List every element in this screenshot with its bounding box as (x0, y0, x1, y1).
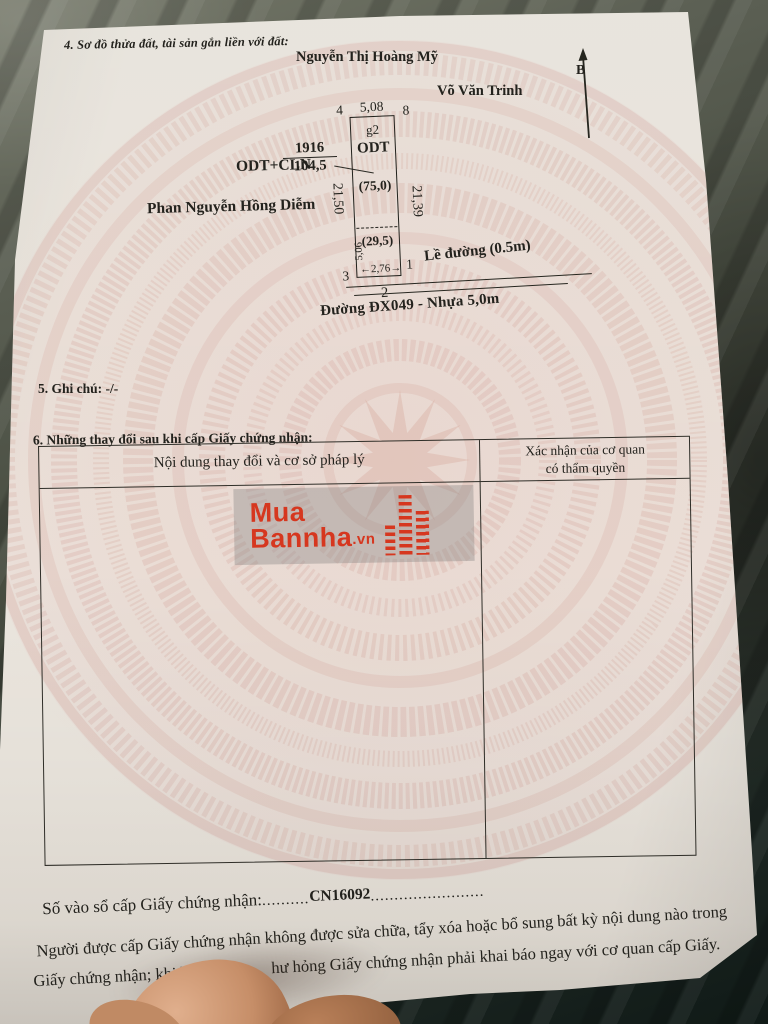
edge-length-top: 5,08 (346, 98, 398, 116)
arrow-left-icon: ← (360, 263, 372, 275)
adjacent-parcel-number: 1916 (282, 140, 337, 159)
sidewalk-label: Lề đường (0.5m) (423, 237, 531, 265)
north-label: B (576, 63, 585, 79)
parcel-divider-line (356, 226, 397, 229)
vertex-3: 3 (342, 268, 349, 284)
vertex-4: 4 (336, 102, 343, 118)
register-number: CN16092 (309, 885, 371, 905)
adjacent-owner-west: Phan Nguyễn Hồng Diễm (147, 196, 316, 218)
edge-length-right: 21,39 (407, 178, 425, 225)
adjacent-parcel-area: 104,5 (283, 157, 338, 176)
photo-canvas: 4. Sơ đồ thửa đất, tài sản gắn liền với … (0, 0, 768, 1024)
north-arrow: B (566, 46, 610, 150)
logo-tld: .vn (352, 531, 375, 548)
table-column-divider (479, 440, 487, 858)
vertex-8: 8 (402, 102, 409, 118)
north-arrow-icon (566, 46, 610, 150)
arrow-right-icon: → (390, 262, 402, 274)
buildings-icon (385, 493, 430, 556)
adjacent-owner-east: Võ Văn Trinh (437, 83, 522, 100)
road-name-label: Đường ĐX049 - Nhựa 5,0m (320, 291, 500, 320)
land-use-label: ODT (352, 139, 396, 158)
vertex-1: 1 (406, 256, 413, 272)
section5-value: -/- (106, 381, 119, 396)
certificate-page: 4. Sơ đồ thửa đất, tài sản gắn liền với … (0, 0, 768, 1024)
table-header-confirm: Xác nhận của cơ quan có thẩm quyền (481, 440, 690, 478)
zone-label: g2 (351, 121, 395, 139)
muabannha-watermark: Mua Bannha.vn (233, 485, 474, 565)
edge-length-bottom: ←2,76→ (353, 262, 408, 276)
adjacent-owner-north: Nguyễn Thị Hoàng Mỹ (296, 49, 438, 66)
edge-length-left: 21,50 (328, 175, 346, 222)
section5-note: 5. Ghi chú: -/- (38, 381, 118, 397)
parcel-outline: 4 5,08 8 g2 ODT (75,0) (29,5) 5,06 21,50… (350, 115, 402, 278)
muabannha-logo-text: Mua Bannha.vn (250, 499, 376, 552)
area-upper: (75,0) (353, 177, 397, 195)
section4-title: 4. Sơ đồ thửa đất, tài sản gắn liền với … (64, 34, 289, 53)
adjacent-parcel-fraction: 1916 104,5 (282, 140, 337, 175)
